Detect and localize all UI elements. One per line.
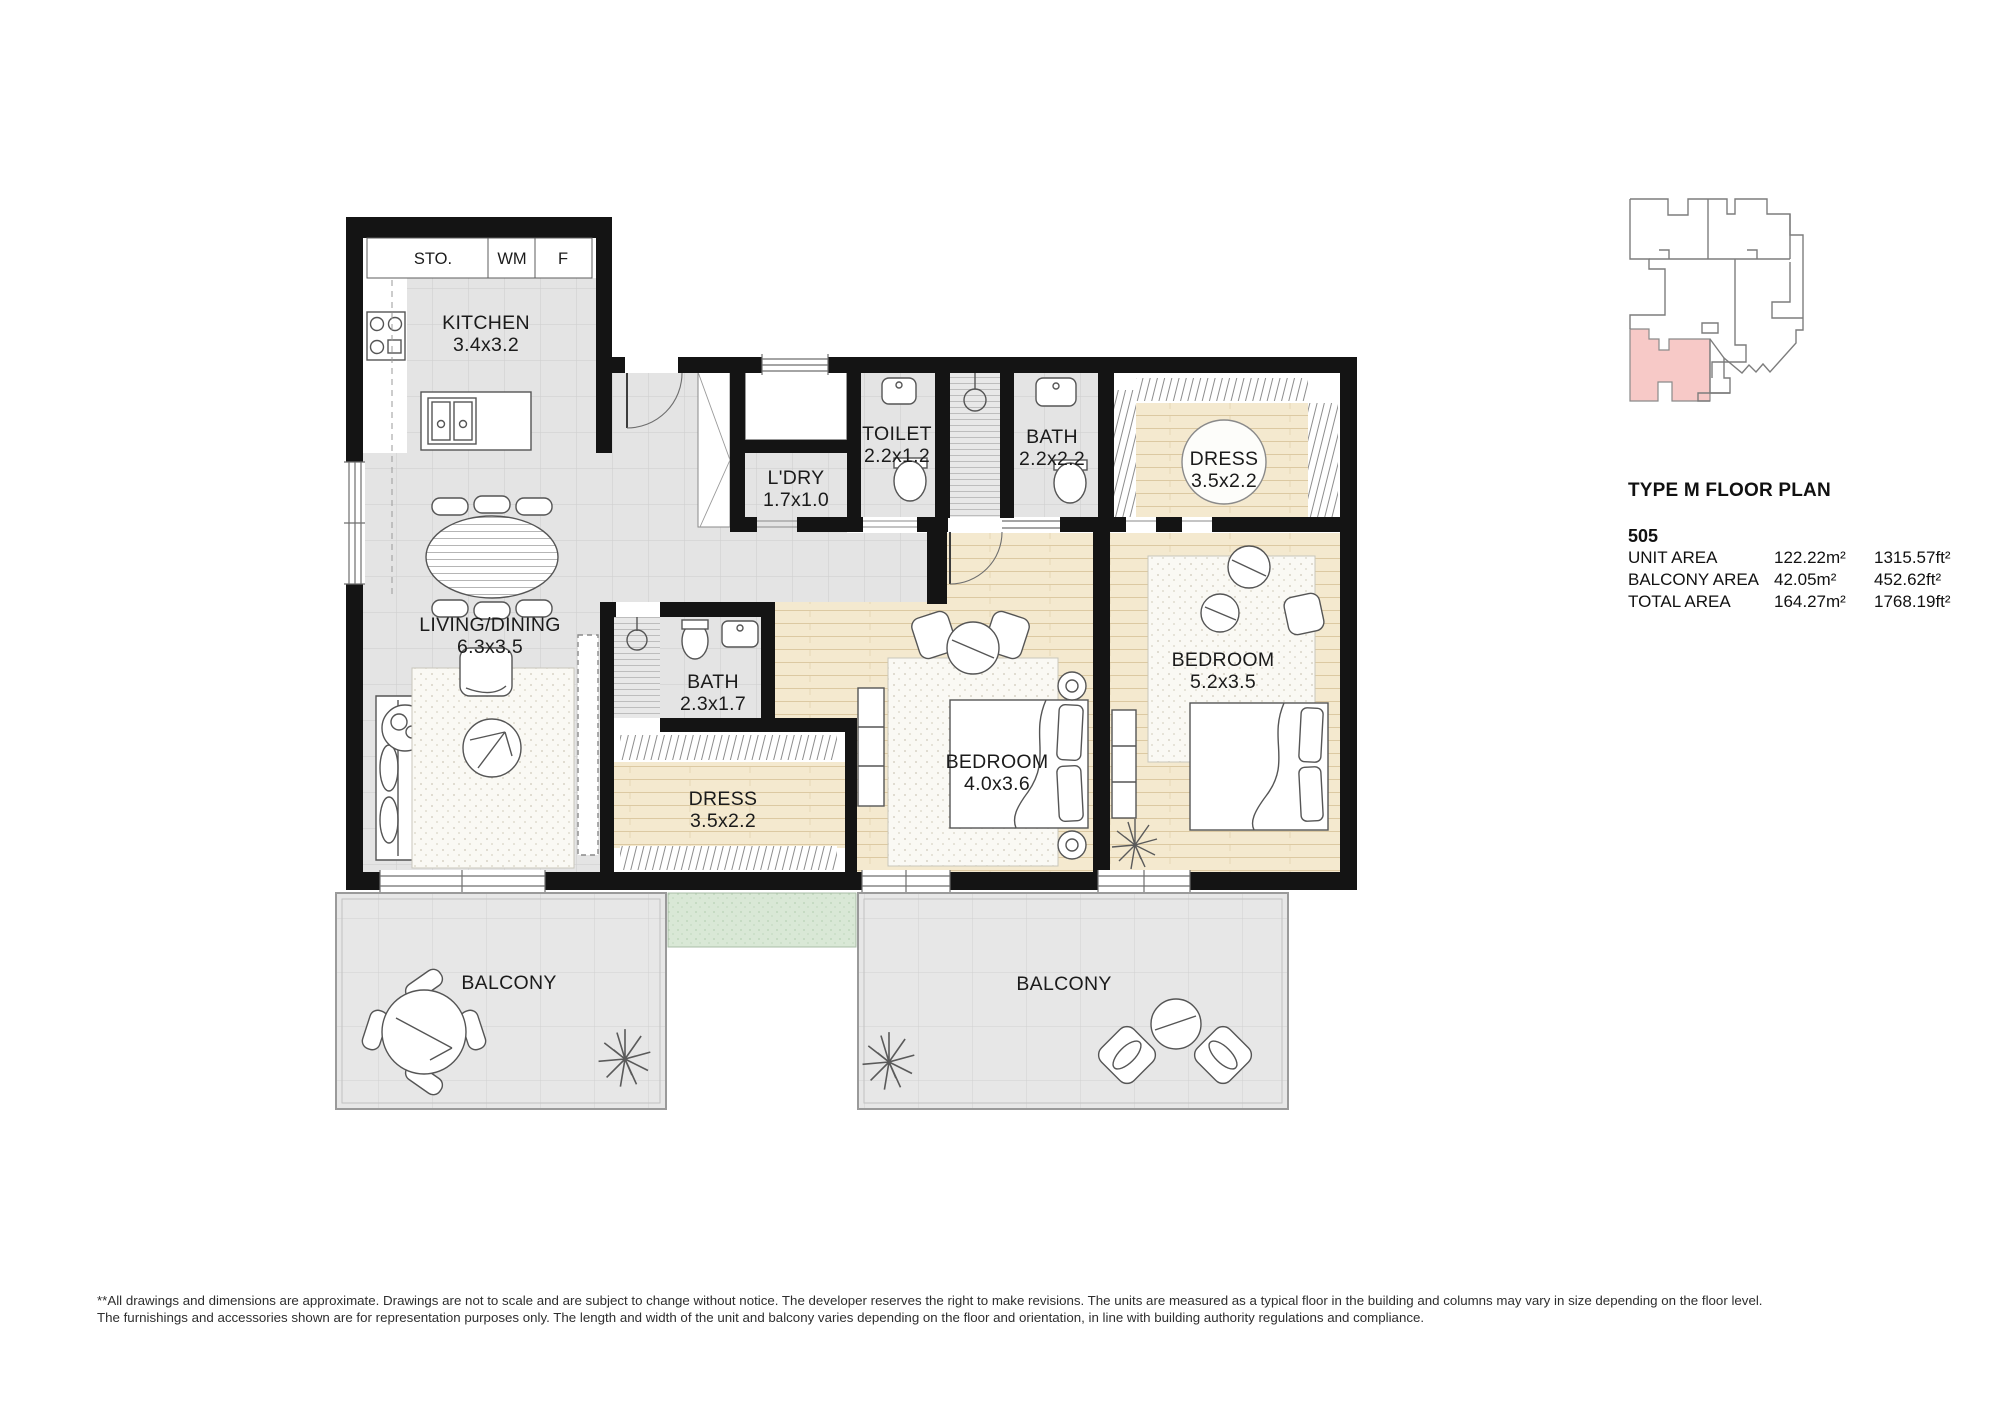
tv-console (578, 635, 598, 855)
room-label-balcony-left: BALCONY (461, 972, 556, 994)
plan-title: TYPE M FLOOR PLAN (1628, 480, 1968, 502)
closet-label-sto: STO. (414, 250, 452, 268)
room-label-balcony-right: BALCONY (1016, 973, 1111, 995)
bedroom1-wardrobe (858, 688, 884, 806)
kitchen-island-sink (421, 392, 531, 450)
area-metric: 42.05m² (1774, 569, 1874, 591)
area-row: UNIT AREA 122.22m² 1315.57ft² (1628, 547, 1968, 569)
area-imperial: 1315.57ft² (1874, 547, 1968, 569)
area-imperial: 452.62ft² (1874, 569, 1968, 591)
bedroom2-wardrobe (1112, 710, 1136, 818)
room-label-bath-top: BATH (1026, 426, 1078, 448)
duct-corridor (950, 372, 1000, 517)
floor-plan-page: STO. WM F KITCHEN 3.4x3.2 L'DRY 1.7x1.0 … (0, 0, 2000, 1414)
room-label-dress-top: DRESS (1190, 448, 1259, 470)
room-dims-toilet: 2.2x1.2 (864, 445, 930, 467)
window (862, 870, 950, 892)
closet-label-f: F (558, 250, 568, 268)
door-threshold (863, 521, 917, 527)
window (344, 462, 365, 584)
dress-top-rail-right (1308, 403, 1338, 517)
room-dims-bath-top: 2.2x2.2 (1019, 448, 1085, 470)
room-label-bedroom2: BEDROOM (1172, 649, 1275, 671)
room-dims-bath-mid: 2.3x1.7 (680, 693, 746, 715)
room-label-toilet: TOILET (862, 423, 932, 445)
area-label: BALCONY AREA (1628, 569, 1774, 591)
floor-plan-drawing: STO. WM F KITCHEN 3.4x3.2 L'DRY 1.7x1.0 … (0, 0, 2000, 1414)
area-row: TOTAL AREA 164.27m² 1768.19ft² (1628, 591, 1968, 613)
window (380, 870, 545, 892)
room-dims-dress-mid: 3.5x2.2 (690, 810, 756, 832)
window (1098, 870, 1190, 892)
room-dims-ldry: 1.7x1.0 (763, 489, 829, 511)
balcony-left-floor (336, 893, 666, 1109)
dress-mid-rail-bottom (620, 846, 837, 870)
area-metric: 122.22m² (1774, 547, 1874, 569)
area-metric: 164.27m² (1774, 591, 1874, 613)
room-label-bath-mid: BATH (687, 671, 739, 693)
info-panel: TYPE M FLOOR PLAN 505 UNIT AREA 122.22m²… (1628, 480, 1968, 613)
room-label-dress-mid: DRESS (689, 788, 758, 810)
room-dims-bedroom2: 5.2x3.5 (1190, 671, 1256, 693)
disclaimer: **All drawings and dimensions are approx… (97, 1292, 1915, 1327)
area-label: TOTAL AREA (1628, 591, 1774, 613)
room-dims-kitchen: 3.4x3.2 (453, 334, 519, 356)
disclaimer-line1: **All drawings and dimensions are approx… (97, 1292, 1915, 1309)
stove (367, 312, 405, 360)
utility-closet-strip: STO. WM F (367, 238, 592, 278)
room-dims-dress-top: 3.5x2.2 (1191, 470, 1257, 492)
bedroom2-bed (1190, 703, 1328, 830)
room-label-bedroom1: BEDROOM (946, 751, 1049, 773)
dress-top-rail-left (1114, 390, 1136, 517)
dress-top-rail-top (1136, 378, 1308, 401)
room-label-kitchen: KITCHEN (442, 312, 530, 334)
disclaimer-line2: The furnishings and accessories shown ar… (97, 1309, 1915, 1326)
area-imperial: 1768.19ft² (1874, 591, 1968, 613)
sliding-door (1002, 521, 1060, 528)
area-label: UNIT AREA (1628, 547, 1774, 569)
key-plan-highlight-unit (1630, 329, 1710, 401)
hall2-floor (775, 533, 927, 602)
dress-mid-rail-top (620, 735, 837, 760)
closet-label-wm: WM (497, 250, 526, 268)
planter (668, 893, 856, 947)
room-dims-living: 6.3x3.5 (457, 636, 523, 658)
bath-mid-lobby (614, 617, 660, 718)
kitchen-counter-strip (367, 278, 407, 453)
area-row: BALCONY AREA 42.05m² 452.62ft² (1628, 569, 1968, 591)
window (762, 354, 828, 375)
coffee-table (463, 719, 521, 777)
room-label-living: LIVING/DINING (419, 614, 561, 636)
entry-closet (698, 372, 730, 527)
laundry-shaft (745, 372, 847, 440)
room-label-ldry: L'DRY (768, 467, 825, 489)
room-dims-bedroom1: 4.0x3.6 (964, 773, 1030, 795)
key-plan (1630, 199, 1803, 401)
unit-number: 505 (1628, 526, 1968, 547)
